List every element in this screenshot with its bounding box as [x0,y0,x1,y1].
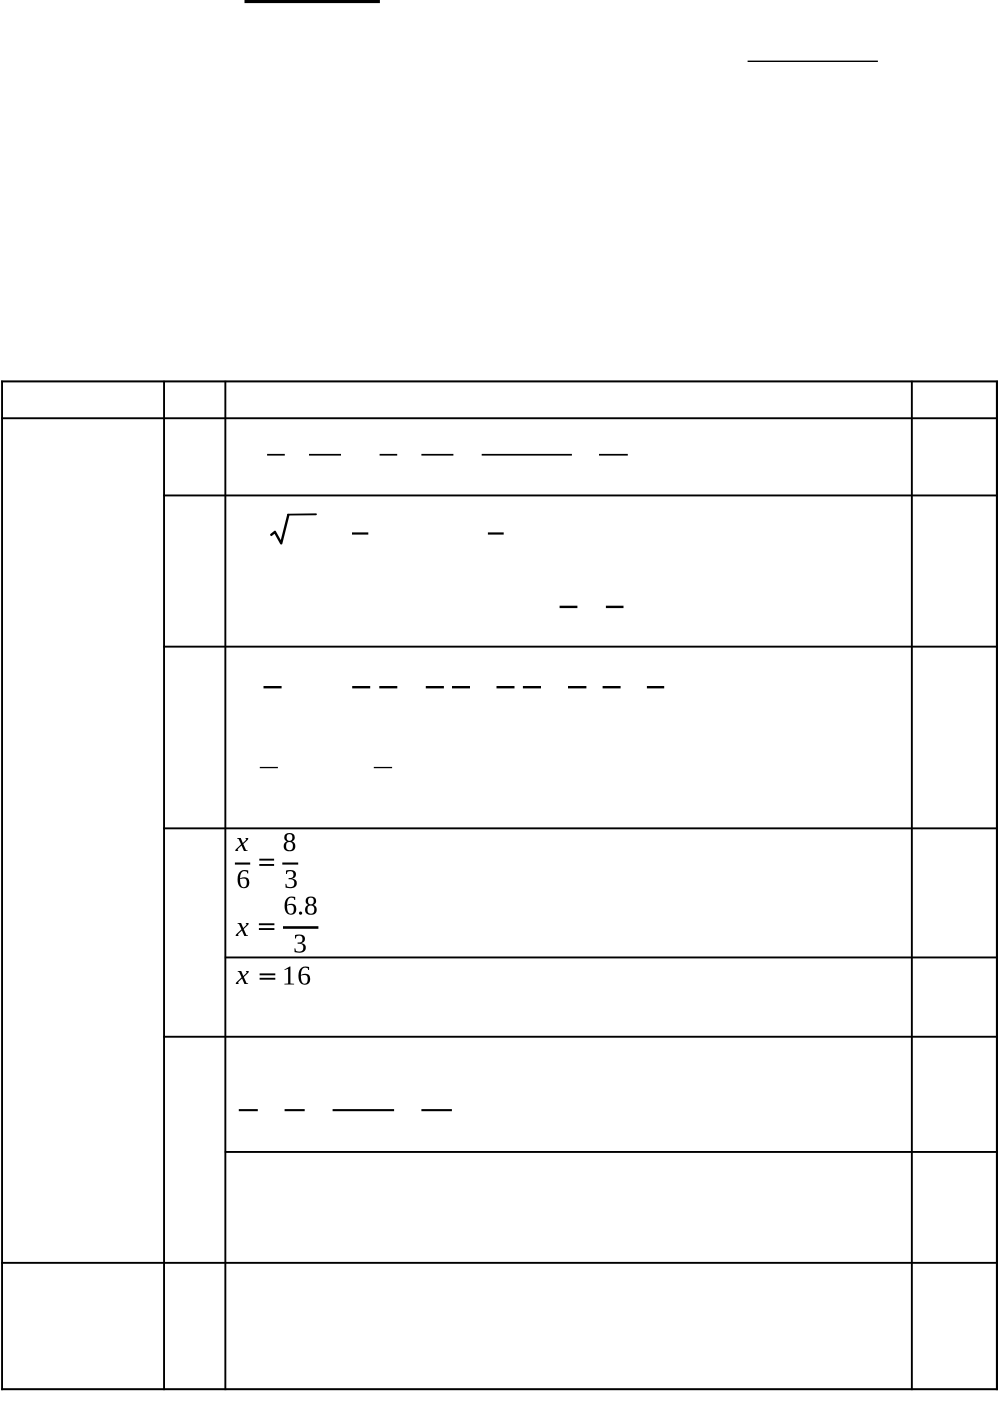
svg-text:6: 6 [236,863,250,894]
svg-text:x: x [235,959,249,991]
svg-text:6.8: 6.8 [283,889,317,920]
svg-text:3: 3 [293,927,307,958]
svg-text:x: x [235,826,249,858]
svg-text:16: 16 [282,959,313,990]
svg-text:x: x [235,911,249,943]
svg-text:8: 8 [283,826,297,857]
